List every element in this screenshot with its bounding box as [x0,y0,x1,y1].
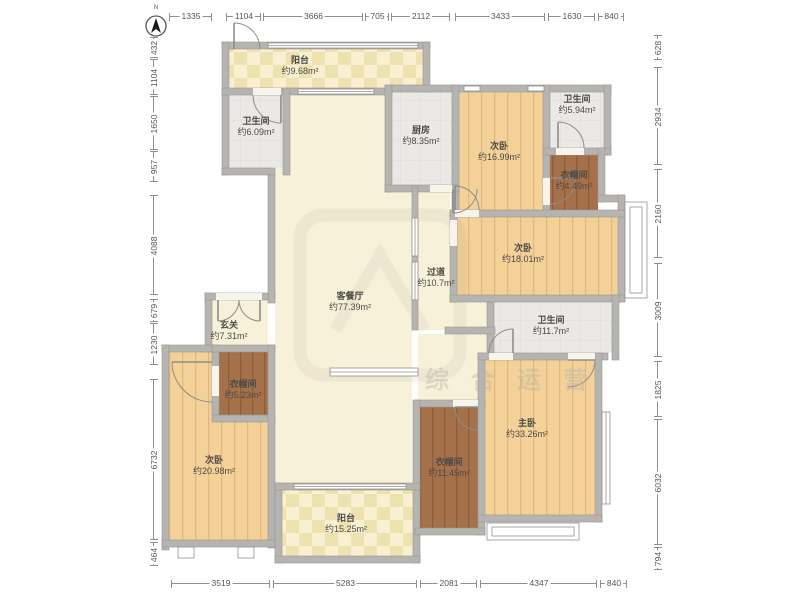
dimension-right: 3009 [657,264,658,357]
dimension-top: 1335 [170,16,212,17]
dimension-top: 840 [599,16,624,17]
dimension-left: 4088 [153,196,154,295]
floor-bath-mid-right [494,302,612,353]
dimension-top: 1104 [227,16,261,17]
dimension-right: 6032 [657,420,658,545]
window [294,484,406,489]
dimension-bottom: 4347 [481,583,597,584]
dimension-bottom: 5283 [274,583,417,584]
window [238,547,254,558]
dimension-left: 1104 [153,60,154,95]
dimension-right: 1825 [657,362,658,417]
floor-plan-canvas: N 综合运营 阳台约9.68m²卫生间约6.09m²厨房约8.35m²次卧约16… [0,0,800,600]
dimension-right: 2160 [657,170,658,258]
floor-closet-bottom [420,407,478,528]
dimension-top: 2112 [392,16,450,17]
north-compass: N [142,5,170,39]
floor-balcony-top [229,49,423,88]
dimension-left: 432 [153,38,154,58]
dimension-bottom: 840 [601,583,627,584]
floor-closet-left [219,352,268,415]
dimension-top: 705 [366,16,389,17]
dimension-top: 3666 [264,16,363,17]
floor-master-bedroom [485,360,595,515]
window [412,218,418,256]
dimension-bottom: 3519 [172,583,270,584]
floor-closet-top-right [550,155,598,210]
floor-balcony-bottom [282,490,413,556]
window [330,368,418,376]
window [602,412,610,504]
floor-kitchen [392,92,452,185]
floor-bedroom-right [457,217,618,295]
bay-window [625,202,647,298]
window [268,43,418,48]
window [178,547,194,558]
dimension-left: 679 [153,300,154,322]
bay-window [487,523,579,540]
dimension-top: 1630 [549,16,595,17]
dimension-top: 3433 [456,16,545,17]
window [298,89,374,94]
dimension-right: 794 [657,548,658,570]
dimension-left: 957 [153,152,154,182]
compass-icon [142,11,170,39]
dimension-left: 464 [153,543,154,566]
dimension-left: 6732 [153,380,154,540]
dimension-bottom: 2081 [421,583,477,584]
floors-layer [169,49,618,556]
dimension-left: 1650 [153,97,154,150]
dimension-right: 2934 [657,68,658,165]
window [412,262,418,300]
floor-bath-left [229,95,283,168]
window [464,86,480,91]
dimension-left: 1230 [153,324,154,365]
floor-plan-drawing [0,0,800,600]
window [528,86,544,91]
dimension-right: 628 [657,36,658,60]
